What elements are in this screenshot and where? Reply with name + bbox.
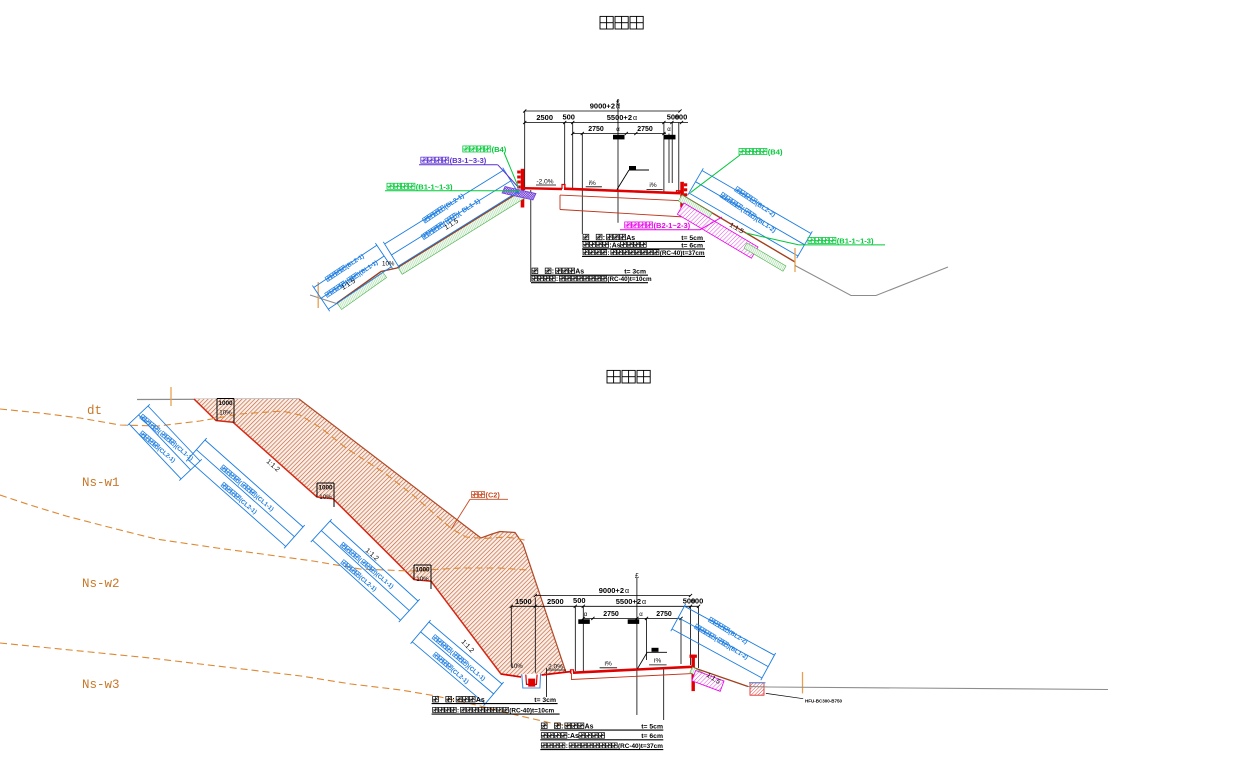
svg-text::As: :As [568,733,579,740]
svg-text:600: 600 [675,113,688,122]
svg-text:2500: 2500 [536,113,553,122]
svg-text:α: α [584,612,588,618]
svg-text:Ns-w2: Ns-w2 [82,577,120,591]
svg-text:10%: 10% [382,261,395,268]
svg-text::: : [603,235,605,242]
svg-text:(B2-1~2-3): (B2-1~2-3) [654,221,691,230]
svg-text:i%: i% [654,658,661,665]
svg-text:t= 5cm: t= 5cm [641,724,663,731]
svg-text:500: 500 [573,596,586,605]
svg-text:As: As [476,697,485,704]
svg-text:10%: 10% [510,663,523,670]
svg-text:10%: 10% [219,409,232,416]
svg-text:1000: 1000 [415,567,430,574]
svg-text:10%: 10% [319,494,332,501]
svg-text:2500: 2500 [547,597,564,606]
svg-text::: : [566,743,568,750]
svg-text:2750: 2750 [603,611,619,618]
svg-text::As: :As [609,242,620,249]
svg-text:As: As [626,235,635,242]
svg-text:2750: 2750 [656,611,672,618]
svg-text:(B3-1~3-3): (B3-1~3-3) [450,156,487,165]
svg-text:t= 6cm: t= 6cm [681,242,703,249]
svg-text:t= 3cm: t= 3cm [624,269,646,276]
svg-text:(RC-40)t=10cm: (RC-40)t=10cm [607,276,652,283]
svg-text:dt: dt [87,404,102,418]
svg-text:α: α [667,127,671,133]
svg-text:(B1-1~1-3): (B1-1~1-3) [837,237,874,246]
svg-text::: : [452,697,454,704]
svg-text:5500+2: 5500+2 [607,113,632,122]
svg-text:9000+2: 9000+2 [590,102,615,111]
svg-text::: : [607,250,609,257]
svg-text:Ns-w1: Ns-w1 [82,476,120,490]
svg-text::: : [556,276,558,283]
svg-text:600: 600 [691,597,704,606]
svg-text:2750: 2750 [588,126,604,133]
svg-text:(RC-40)t=10cm: (RC-40)t=10cm [509,708,554,715]
svg-text:i%: i% [605,661,612,668]
svg-text:α: α [639,612,643,618]
svg-text:5500+2: 5500+2 [616,597,641,606]
svg-text:(B4): (B4) [768,148,783,157]
svg-text:£: £ [635,573,639,580]
svg-text:t= 3cm: t= 3cm [534,697,556,704]
svg-text:HFU-BC300-B750: HFU-BC300-B750 [805,699,843,704]
svg-text:Ns-w3: Ns-w3 [82,678,120,692]
svg-text:10%: 10% [416,576,429,583]
svg-text:2.0%: 2.0% [548,664,563,671]
svg-text:(RC-40)t=37cm: (RC-40)t=37cm [618,743,663,750]
svg-text:α: α [616,127,620,133]
svg-text::: : [561,724,563,731]
svg-text:As: As [575,269,584,276]
svg-text:1500: 1500 [515,597,532,606]
svg-text:α: α [616,104,620,111]
svg-text:i%: i% [649,182,656,189]
svg-text:As: As [585,724,594,731]
svg-text:α: α [625,588,629,595]
svg-text:1000: 1000 [318,485,333,492]
svg-text:α: α [642,599,646,606]
svg-text:t= 5cm: t= 5cm [681,235,703,242]
svg-text::: : [457,708,459,715]
svg-text::: : [552,269,554,276]
svg-text:500: 500 [562,113,575,122]
svg-text:α: α [633,115,637,122]
svg-text:1000: 1000 [218,400,233,407]
svg-text:2750: 2750 [637,126,653,133]
svg-text:9000+2: 9000+2 [599,586,624,595]
svg-text:(C2): (C2) [486,491,501,500]
svg-text:(RC-40)t=37cm: (RC-40)t=37cm [660,250,705,257]
svg-text:i%: i% [589,180,596,187]
svg-text:-2.0%: -2.0% [537,179,554,186]
svg-text:(B1-1~1-3): (B1-1~1-3) [416,182,453,191]
svg-text:t= 6cm: t= 6cm [641,733,663,740]
